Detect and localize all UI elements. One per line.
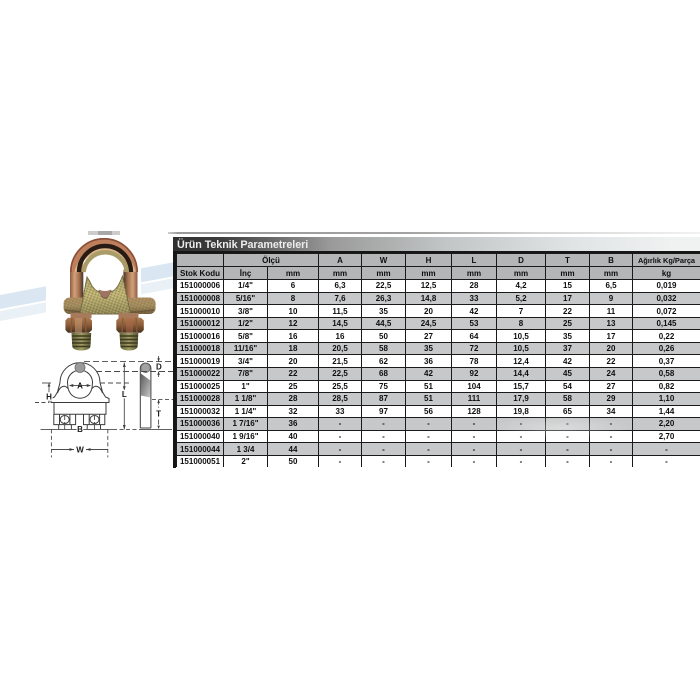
svg-text:L: L <box>122 390 127 399</box>
svg-text:H: H <box>46 393 52 402</box>
svg-text:A: A <box>77 382 83 391</box>
svg-text:W: W <box>76 446 84 455</box>
svg-text:B: B <box>77 425 83 434</box>
svg-text:T: T <box>156 410 161 419</box>
svg-text:D: D <box>156 362 162 371</box>
